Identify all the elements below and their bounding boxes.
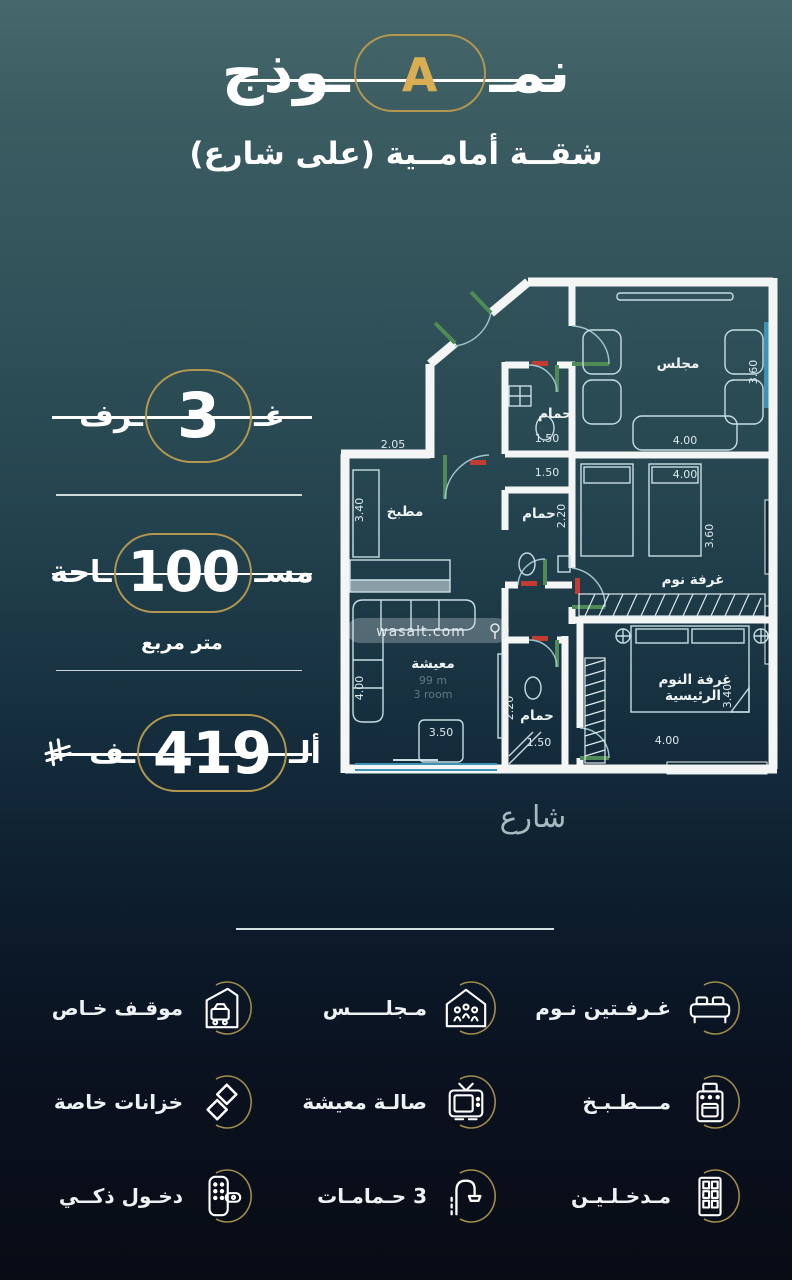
majlis-label: مجلس xyxy=(657,356,700,372)
feature-kitchen: مـــطـبـخ xyxy=(518,1070,762,1134)
living-note-2: 3 room xyxy=(414,688,453,701)
shower-icon xyxy=(442,1165,504,1227)
master-height: 3.40 xyxy=(721,684,734,709)
watermark-text: wasalt.com xyxy=(376,624,466,640)
spec-badges: غـ 3 ـرف مسـ 100 ـاحة متر مربع ألـ 419 xyxy=(46,352,318,809)
feature-two-entrances: مـدخـلـيـن xyxy=(518,1164,762,1228)
living-label: معيشة xyxy=(411,656,454,672)
feature-label: مـجلـــــس xyxy=(323,996,427,1020)
bath-entry-label: حمام xyxy=(538,406,572,422)
feature-label: غـرفـتين نـوم xyxy=(535,996,671,1020)
feature-majlis: مـجلـــــس xyxy=(274,976,518,1040)
feature-three-bathrooms: 3 حـمامـات xyxy=(274,1164,518,1228)
majlis-height: 3.60 xyxy=(747,360,760,385)
feature-label: خزانات خاصة xyxy=(54,1090,183,1114)
living-note-1: 99 m xyxy=(419,674,447,687)
rooms-badge: غـ 3 ـرف xyxy=(46,352,318,480)
floor-plan-drawing: مجلس 4.00 3.60 غرفة نوم 4.00 3.60 غرفة ا… xyxy=(333,268,792,803)
price-word-left: ـف xyxy=(89,736,135,771)
price-badge: ألـ 419 ـف xyxy=(46,697,318,809)
feature-label: موقـف خـاص xyxy=(52,996,183,1020)
majlis-width: 4.00 xyxy=(673,434,698,447)
price-value-oval: 419 xyxy=(137,714,287,792)
rooms-count: 3 xyxy=(177,385,220,447)
title-word-right: نمـ xyxy=(490,38,571,108)
rooms-word-left: ـرف xyxy=(79,399,143,434)
model-letter-oval: A xyxy=(354,34,486,112)
area-value-oval: 100 xyxy=(114,533,253,613)
parking-icon xyxy=(198,977,260,1039)
area-unit: متر مربع xyxy=(46,632,318,654)
title-word-left: ـوذج xyxy=(222,38,350,108)
badge-divider xyxy=(56,494,302,496)
price-word-right: ألـ xyxy=(289,736,321,771)
feature-private-parking: موقـف خـاص xyxy=(30,976,274,1040)
bed-icon xyxy=(686,977,748,1039)
tanks-icon xyxy=(198,1071,260,1133)
bedroom-label: غرفة نوم xyxy=(662,572,725,588)
saudi-riyal-icon xyxy=(43,736,73,770)
rooms-count-oval: 3 xyxy=(145,369,252,463)
majlis-icon xyxy=(442,977,504,1039)
bath-master-label: حمام xyxy=(520,708,554,724)
floor-plan: مجلس 4.00 3.60 غرفة نوم 4.00 3.60 غرفة ا… xyxy=(333,268,792,803)
kitchen-height: 3.40 xyxy=(353,498,366,523)
page-subtitle: شقــة أمامــية (على شارع) xyxy=(0,136,792,172)
feature-label: مـدخـلـيـن xyxy=(571,1184,671,1208)
features-grid: غـرفـتين نـوم مـجلـــــس xyxy=(0,958,792,1228)
feature-label: 3 حـمامـات xyxy=(317,1184,427,1208)
bath-master-width: 1.50 xyxy=(527,736,552,749)
watermark: wasalt.com xyxy=(347,618,509,643)
page-title: نمـ A ـوذج xyxy=(0,34,792,112)
poster-page: نمـ A ـوذج شقــة أمامــية (على شارع) غـ … xyxy=(0,0,792,1280)
smart-lock-icon xyxy=(198,1165,260,1227)
area-word-left: ـاحة xyxy=(50,555,111,590)
area-value: 100 xyxy=(128,545,239,601)
area-badge: مسـ 100 ـاحة xyxy=(46,518,318,628)
feature-label: صالـة معيشة xyxy=(302,1090,427,1114)
area-word-right: مسـ xyxy=(254,555,313,590)
kitchen-width: 2.05 xyxy=(381,438,406,451)
stove-icon xyxy=(686,1071,748,1133)
bedroom-width: 4.00 xyxy=(673,468,698,481)
living-height: 4.00 xyxy=(353,676,366,701)
tv-icon xyxy=(442,1071,504,1133)
feature-label: مـــطـبـخ xyxy=(582,1090,671,1114)
hall-dim: 1.50 xyxy=(535,466,560,479)
bath-master-height: 2.20 xyxy=(503,696,516,721)
feature-private-tanks: خزانات خاصة xyxy=(30,1070,274,1134)
interior-walls xyxy=(505,282,776,772)
feature-two-bedrooms: غـرفـتين نـوم xyxy=(518,976,762,1040)
room-labels: مجلس 4.00 3.60 غرفة نوم 4.00 3.60 غرفة ا… xyxy=(353,356,760,749)
feature-smart-entry: دخـول ذكــي xyxy=(30,1164,274,1228)
living-table-dim: 3.50 xyxy=(429,726,454,739)
section-divider xyxy=(236,928,554,930)
bath-entry-dim: 1.50 xyxy=(535,432,560,445)
door-icon xyxy=(686,1165,748,1227)
door-thresholds xyxy=(470,361,580,641)
bath-mid-height: 2.20 xyxy=(555,504,568,529)
badge-divider xyxy=(56,670,302,672)
rooms-word-right: غـ xyxy=(254,399,285,434)
master-width: 4.00 xyxy=(655,734,680,747)
street-label: شارع xyxy=(333,800,733,835)
model-letter: A xyxy=(402,48,438,102)
area-badge-wrap: مسـ 100 ـاحة متر مربع xyxy=(46,518,318,654)
bedroom-height: 3.60 xyxy=(703,524,716,549)
feature-living-room: صالـة معيشة xyxy=(274,1070,518,1134)
bath-mid-label: حمام xyxy=(522,506,556,522)
master-label-2: الرئيسية xyxy=(665,688,721,704)
feature-label: دخـول ذكــي xyxy=(59,1184,183,1208)
kitchen-label: مطبخ xyxy=(387,504,424,520)
price-value: 419 xyxy=(153,724,271,782)
